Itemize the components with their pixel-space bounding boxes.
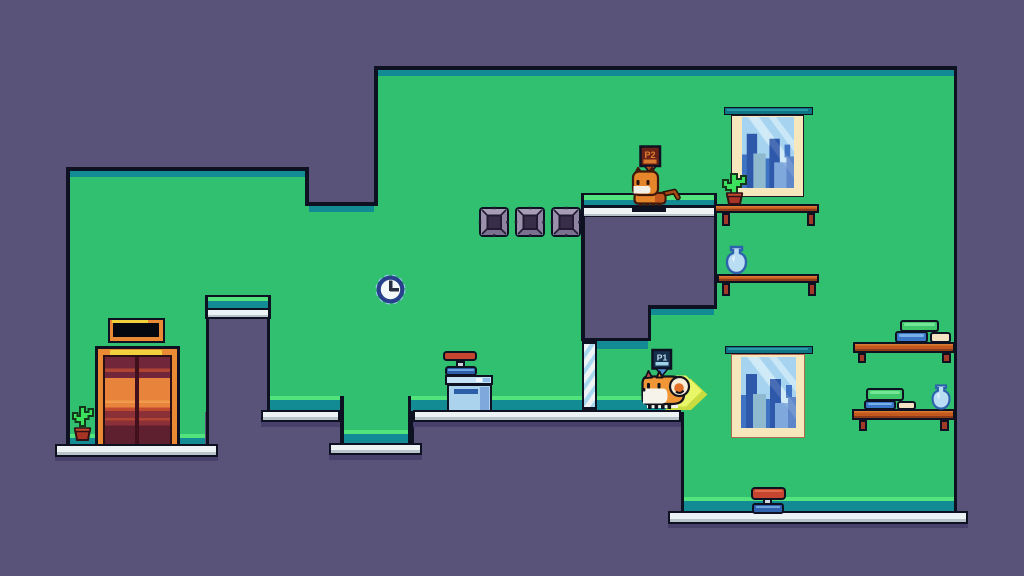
svg-text:P1: P1 — [657, 353, 668, 363]
svg-text:P2: P2 — [644, 150, 655, 160]
